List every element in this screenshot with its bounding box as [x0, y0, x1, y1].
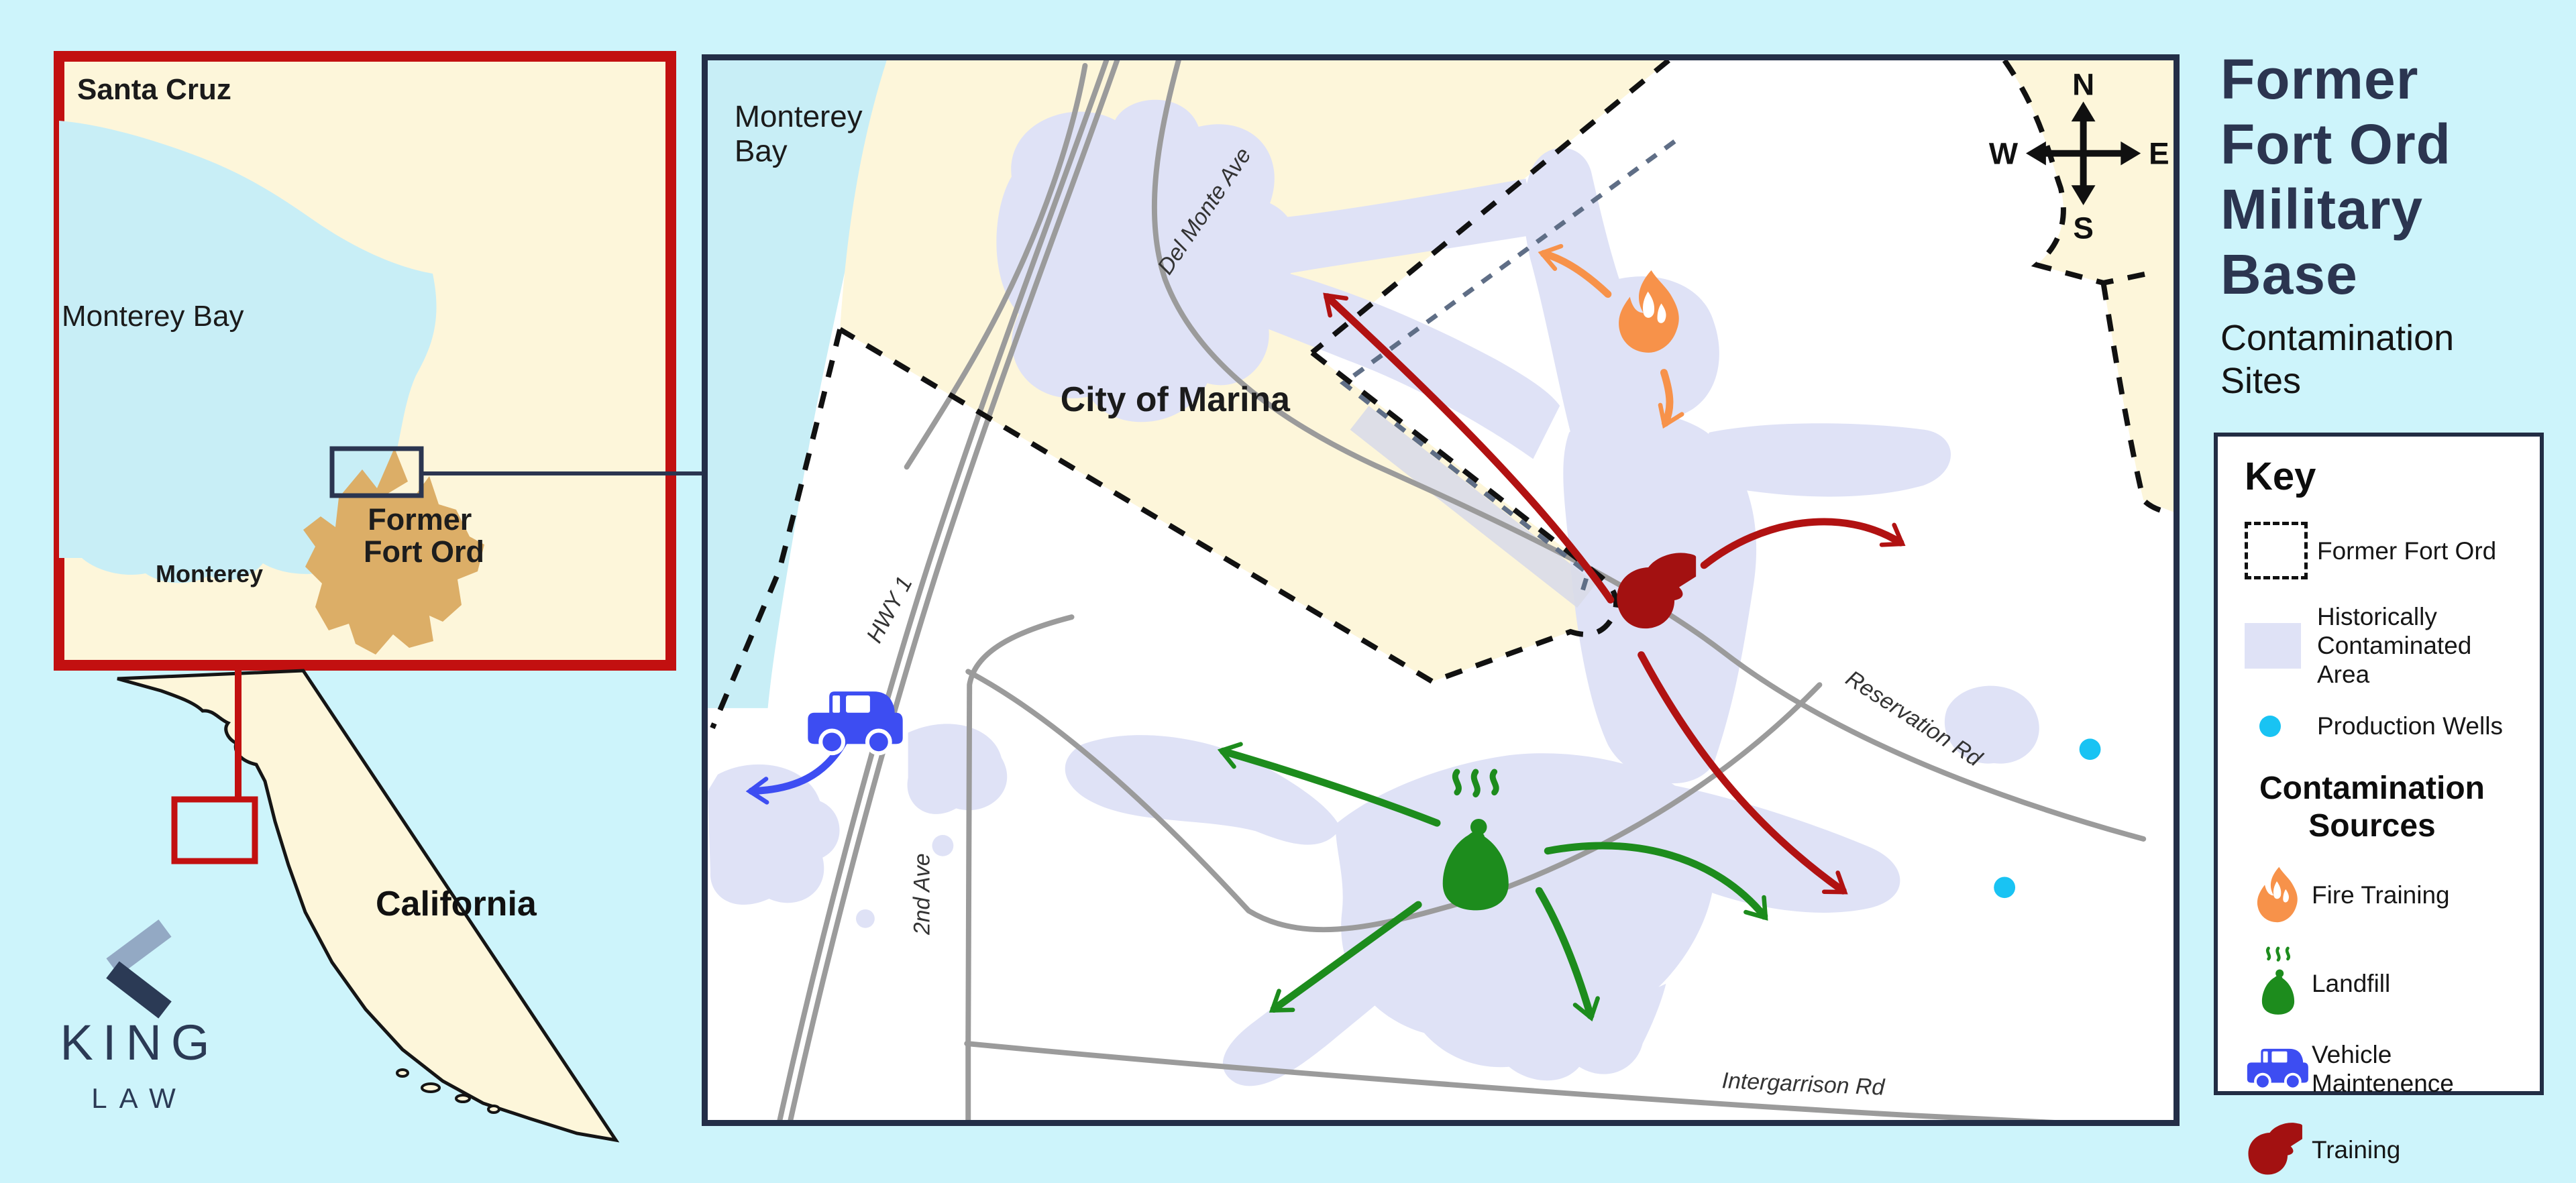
key-label-landfill: Landfill — [2312, 969, 2390, 998]
northeast-cream-area — [2004, 60, 2173, 512]
label-intergarrison-rd: Intergarrison Rd — [1721, 1068, 1886, 1100]
page-title-line: Military — [2220, 177, 2559, 242]
key-item-vehicle: Vehicle Maintenence — [2245, 1037, 2526, 1101]
compass-e: E — [2149, 137, 2169, 171]
production-well-dot — [1994, 877, 2015, 898]
contaminated-area-swatch — [2245, 623, 2301, 669]
label-city-of-marina: City of Marina — [1061, 380, 1291, 418]
logo-subname: LAW — [91, 1082, 187, 1114]
key-label-contaminated-line1: Historically — [2317, 603, 2437, 630]
logo-name: KING — [60, 1015, 219, 1070]
compass-n: N — [2072, 68, 2094, 102]
key-label-contaminated: Historically Contaminated Area — [2317, 602, 2526, 689]
page-title-line: Former — [2220, 47, 2559, 112]
main-map: N S W E Monterey Bay Del Monte Ave City … — [702, 54, 2180, 1126]
key-item-landfill: Landfill — [2245, 944, 2526, 1022]
landfill-icon — [2245, 944, 2312, 1022]
inset-map: Santa Cruz Monterey Bay Monterey Former … — [59, 56, 757, 665]
key-item-training: Training — [2245, 1116, 2526, 1183]
sources-heading: Contamination Sources — [2238, 770, 2506, 845]
label-monterey: Monterey — [156, 560, 263, 587]
logo-chevron-bottom — [113, 970, 165, 1010]
label-california: California — [376, 885, 537, 923]
production-well-swatch — [2259, 716, 2281, 737]
key-item-wells: Production Wells — [2245, 712, 2526, 740]
sources-heading-line2: Sources — [2308, 808, 2435, 844]
page-title-line: Base — [2220, 242, 2559, 307]
locator-rect — [174, 799, 255, 861]
key-label-vehicle: Vehicle Maintenence — [2312, 1040, 2454, 1098]
key-label-contaminated-line2: Contaminated Area — [2317, 632, 2471, 688]
label-2nd-ave: 2nd Ave — [909, 853, 934, 936]
page-subtitle: Contamination Sites — [2220, 317, 2509, 402]
production-well-dot — [2080, 738, 2101, 760]
locator-maps: Santa Cruz Monterey Bay Monterey Former … — [0, 0, 758, 1145]
map-key: Key Former Fort Ord Historically Contami… — [2214, 433, 2544, 1095]
sources-heading-line1: Contamination — [2259, 771, 2485, 806]
key-label-fire: Fire Training — [2312, 881, 2450, 909]
key-label-wells: Production Wells — [2317, 712, 2503, 740]
key-label-vehicle-line2: Maintenence — [2312, 1070, 2454, 1097]
label-santa-cruz: Santa Cruz — [77, 73, 231, 106]
key-item-contaminated: Historically Contaminated Area — [2245, 602, 2526, 689]
key-item-fire: Fire Training — [2245, 860, 2526, 929]
key-item-fort-ord: Former Fort Ord — [2245, 522, 2526, 579]
label-inset-fort-ord: Former Fort Ord — [364, 502, 484, 569]
vehicle-icon — [808, 691, 902, 753]
fort-ord-boundary-swatch — [2245, 522, 2308, 579]
vehicle-icon — [2245, 1037, 2312, 1101]
key-label-fort-ord: Former Fort Ord — [2317, 537, 2496, 565]
key-label-training: Training — [2312, 1135, 2400, 1164]
training-icon — [2245, 1116, 2312, 1183]
key-heading: Key — [2245, 454, 2526, 499]
compass-w: W — [1989, 137, 2019, 171]
compass-s: S — [2073, 211, 2094, 245]
fire-icon — [2245, 860, 2312, 929]
key-label-vehicle-line1: Vehicle — [2312, 1041, 2392, 1068]
page-title-line: Fort Ord — [2220, 112, 2559, 177]
label-inset-monterey-bay: Monterey Bay — [62, 300, 244, 333]
logo-chevron-top — [113, 928, 165, 967]
title-block: Former Fort Ord Military Base Contaminat… — [2220, 47, 2559, 402]
firm-logo: KING LAW — [60, 928, 219, 1114]
label-hwy1: HWY 1 — [861, 572, 918, 646]
